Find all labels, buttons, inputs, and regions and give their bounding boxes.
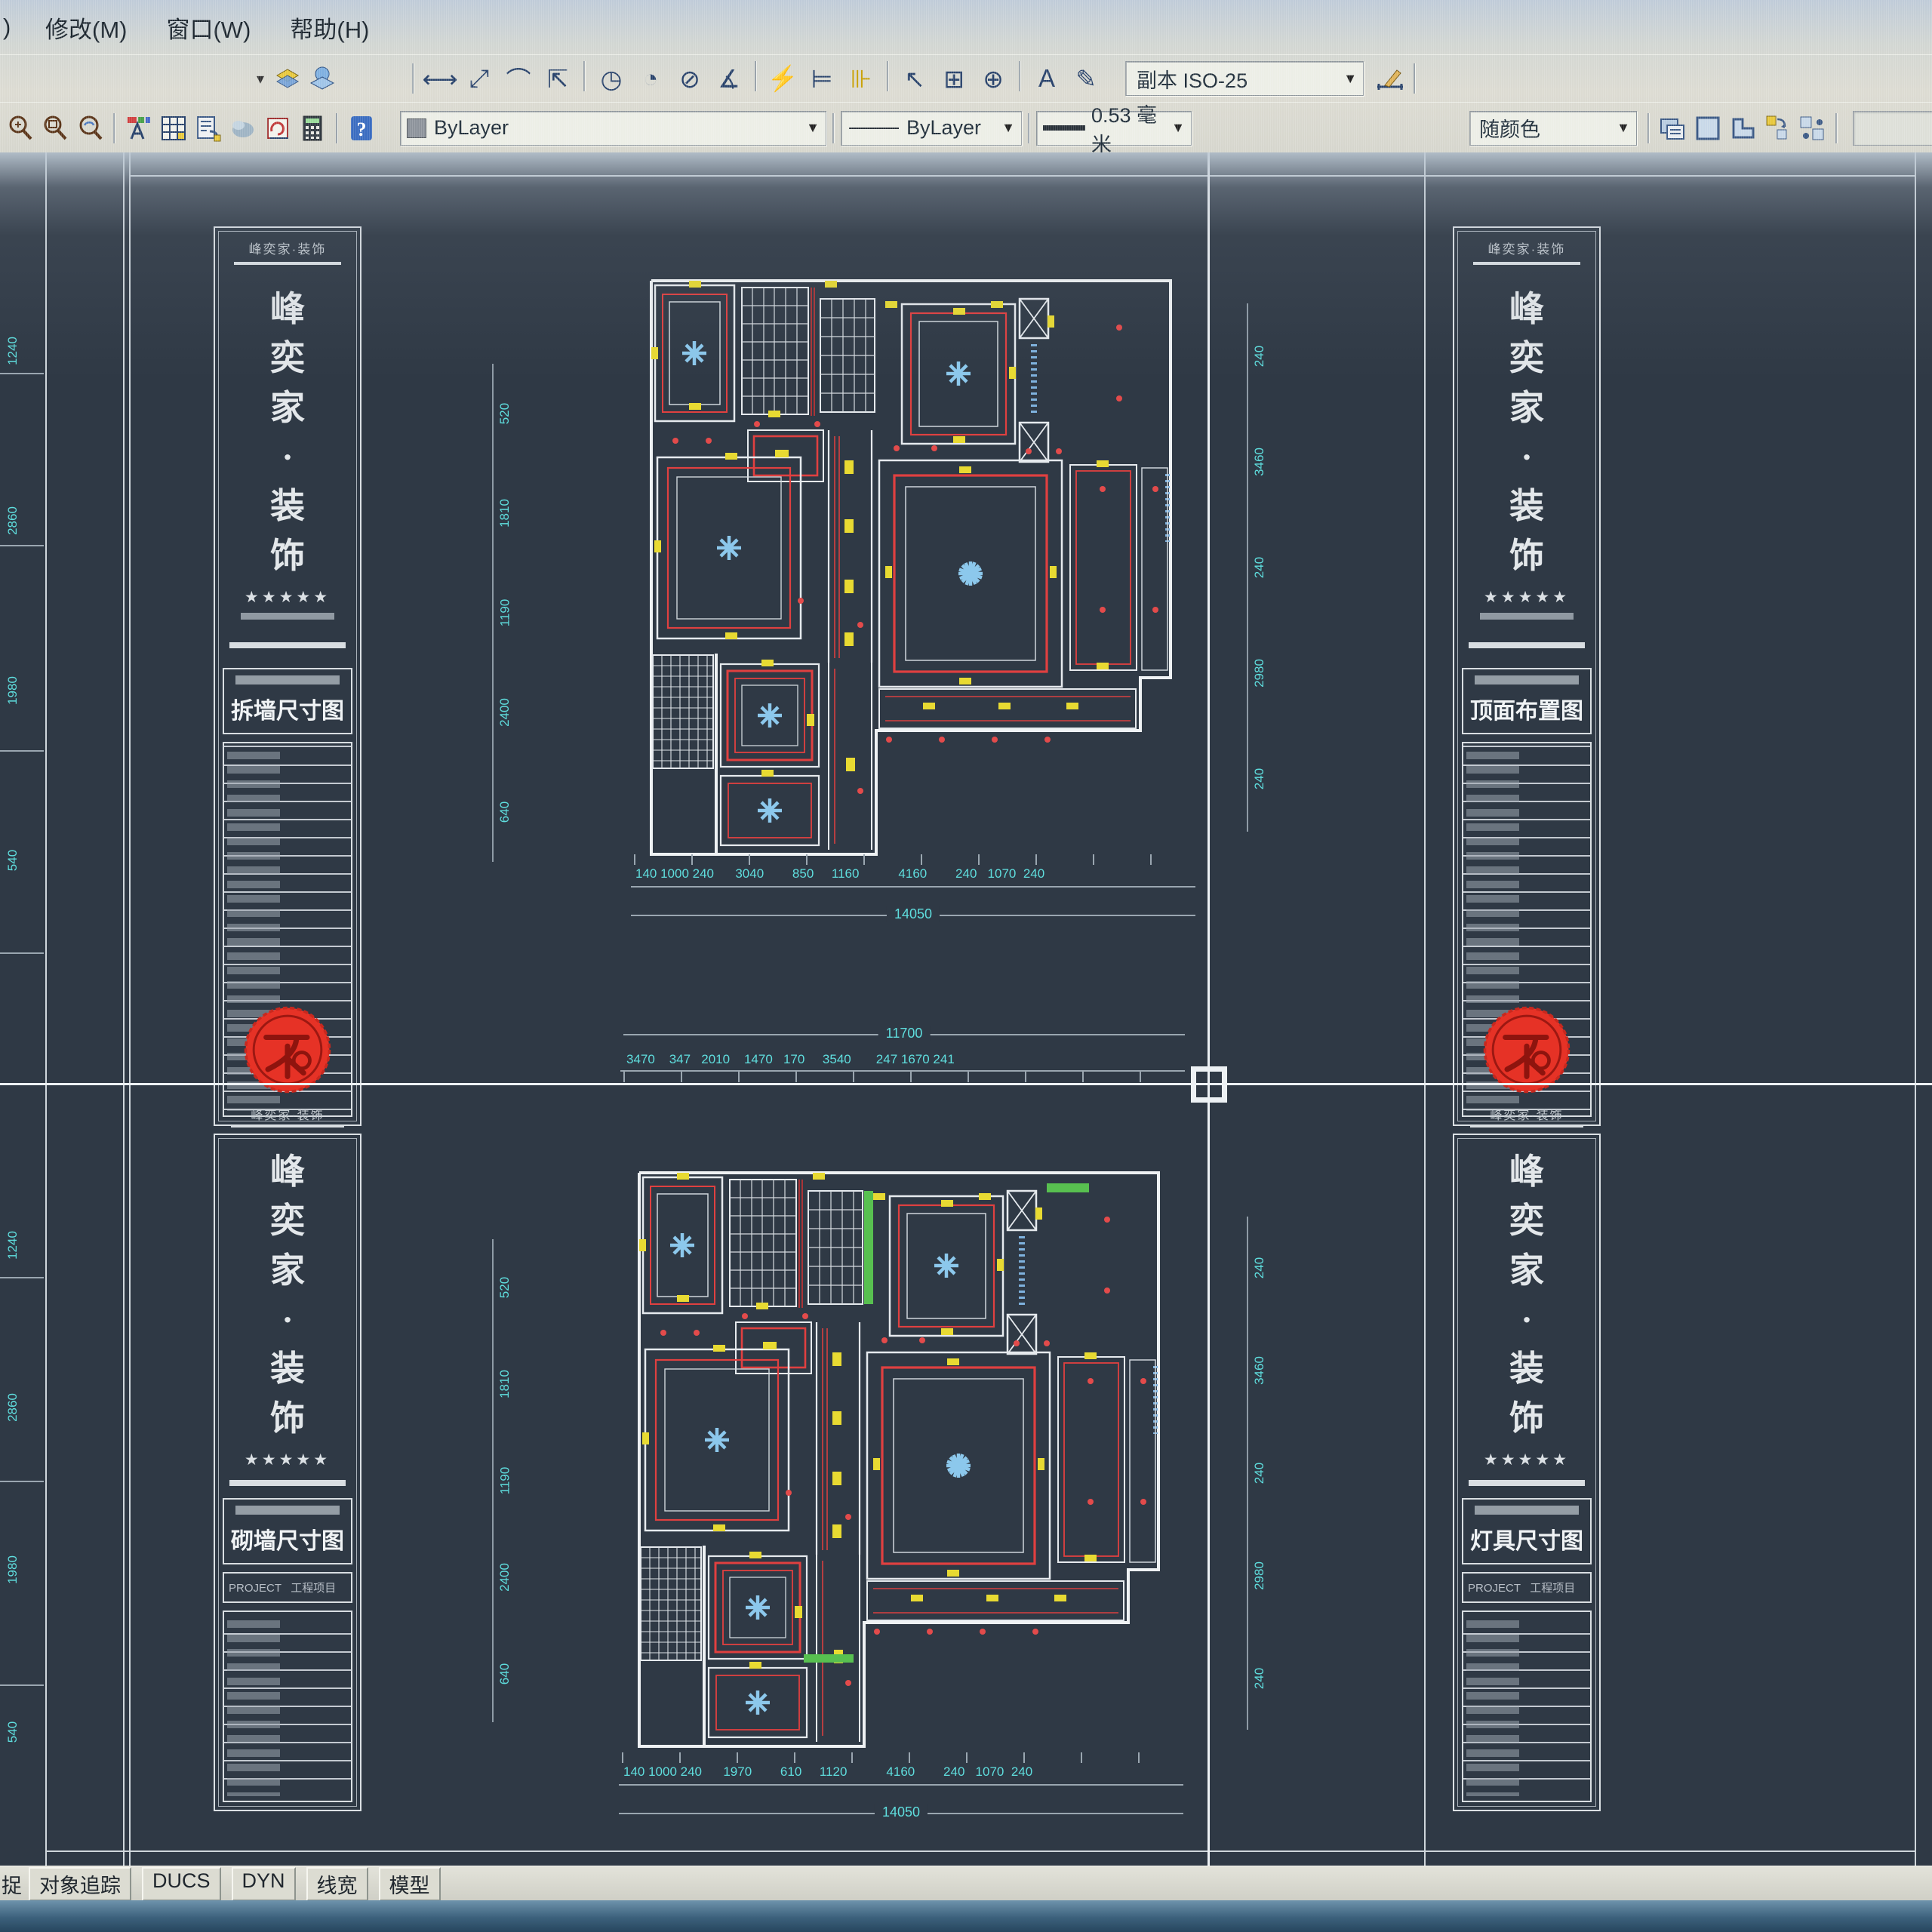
sheet-border-line [129,152,131,1866]
titleblock-top-right: 峰奕家·装饰 峰 奕 家 · 装 饰 ★★★★★ 顶面布置图 [1453,226,1601,1126]
linetype-value: ByLayer [906,116,981,140]
dim-chain-labels: 140 1000 240 3040 850 1160 4160 240 1070… [635,866,1194,881]
dim-extension-line [0,952,44,954]
layer-color-swatch [407,118,426,138]
quick-leader-icon[interactable]: ↖ [895,61,934,96]
titleblock-wide-bar [1469,642,1586,648]
arc-length-dimension-icon[interactable]: ⌒ [499,61,538,96]
dim-chain-vertical: 124028601980540 [2,1164,24,1813]
properties-toolbar: ? ByLayer ▼ ByLayer ▼ 0.53 毫米 ▼ 随颜色 ▼ [0,102,1932,154]
sheet-border-line [1915,152,1916,1866]
crosshair-vertical-line [1207,152,1210,1866]
dimension-toolbar: ▾ ⟷⤢⌒⇱◷◔⊘∡⚡⊨⊪↖⊞⊕A✎ 副本 ISO-25 ▼ [0,54,1932,103]
batch-plot-icon[interactable] [1795,111,1829,146]
toolbar-separator [583,61,586,91]
titleblock-stars: ★★★★★ [1484,588,1570,607]
dimension-edit-icon[interactable]: A [1027,61,1066,96]
sheet-border-line [45,152,47,1866]
menu-window[interactable]: 窗口(W) [146,6,270,49]
toolbar-separator [887,61,889,91]
toolbar-separator [832,113,835,143]
titleblock-underline [231,1124,344,1128]
toolbar-separator [1028,113,1030,143]
zoom-realtime-icon[interactable] [3,111,38,146]
titleblock-brand-header: 峰奕家·装饰 [1453,1105,1601,1123]
titleblock-brand-vertical: 峰 奕 家 · 装 饰 [270,285,305,580]
publish-icon[interactable] [1760,111,1795,146]
help-icon[interactable]: ? [344,111,379,146]
layer-combo[interactable]: ByLayer ▼ [400,111,826,146]
angular-dimension-icon[interactable]: ∡ [709,61,749,96]
status-model[interactable]: 模型 [379,1867,441,1901]
menu-items: 修改(M)窗口(W)帮助(H) [26,6,389,49]
dim-chain-labels: 3470 347 2010 1470 170 3540 247 1670 241 [626,1052,1185,1067]
titleblock-brand-header: 峰奕家·装饰 [249,238,327,257]
markup-icon[interactable] [260,111,295,146]
tolerance-icon[interactable]: ⊞ [934,61,974,96]
titleblock-wide-bar [1469,1480,1586,1486]
sheet-label: 灯具尺寸图 [1470,1522,1583,1555]
project-row: PROJECT 工程项目 [1462,1572,1592,1603]
dim-line [619,1784,1183,1786]
print-preview-icon[interactable] [1656,111,1690,146]
menu-bar: ) 修改(M)窗口(W)帮助(H) [0,0,1932,54]
linetype-sample [849,128,899,129]
menu-help[interactable]: 帮助(H) [270,6,389,49]
sheet-label: 顶面布置图 [1470,692,1583,725]
titleblock-brand-vertical: 峰 奕 家 · 装 饰 [270,1147,305,1443]
svg-text:?: ? [357,118,367,140]
dim-total: 11700 [623,1034,1185,1035]
crosshair-horizontal-line [0,1083,1932,1085]
toolbar-separator [1019,61,1021,91]
titleblock-stars: ★★★★★ [1484,1451,1570,1469]
status-dyn[interactable]: DYN [232,1867,296,1901]
monitor-bezel [0,1900,1932,1932]
titleblock-bottom-right: 峰 奕 家 · 装 饰 ★★★★★ 灯具尺寸图 PROJECT 工程项目 [1453,1134,1601,1811]
dim-chain-vertical: 24034602402980240 [1247,1217,1271,1730]
layer-states-icon[interactable] [305,61,340,96]
dim-chain-vertical: 520181011902400640 [492,1239,516,1722]
titleblock-stars: ★★★★★ [245,588,331,607]
chevron-down-icon[interactable]: ▼ [1343,71,1357,87]
layer-translate-icon[interactable] [191,111,226,146]
label-strip [1475,675,1579,685]
dim-chain-vertical: 124028601980540 [2,266,24,945]
sheet-label: 拆墙尺寸图 [231,692,344,725]
dim-ticks [623,1072,1182,1082]
titleblock-brand-vertical: 峰 奕 家 · 装 饰 [1509,1147,1544,1443]
dimension-toolbar-icons: ⟷⤢⌒⇱◷◔⊘∡⚡⊨⊪↖⊞⊕A✎ [420,61,1106,96]
quick-dimension-icon[interactable]: ⚡ [763,61,802,96]
sheet-label-box: 顶面布置图 [1462,668,1592,734]
center-mark-icon[interactable]: ⊕ [974,61,1013,96]
status-clipped-fragment: 捉 [2,1869,21,1899]
status-ducs[interactable]: DUCS [142,1867,221,1901]
linear-dimension-icon[interactable]: ⟷ [420,61,460,96]
label-strip [235,675,340,685]
titleblock-wide-bar [229,642,346,648]
layer-value: ByLayer [434,116,509,140]
project-row: PROJECT 工程项目 [223,1572,352,1603]
page-setup-icon[interactable] [1725,111,1760,146]
sheet-label-box: 拆墙尺寸图 [223,668,352,734]
titleblock-wide-bar [229,1480,346,1486]
sheet-label-box: 灯具尺寸图 [1462,1498,1592,1564]
titleblock-brand-vertical: 峰 奕 家 · 装 饰 [1509,285,1544,580]
titleblock-stars: ★★★★★ [245,1451,331,1469]
calculator-icon[interactable] [295,111,330,146]
toolbar-separator [1647,113,1650,143]
titleblock-gray-line [1480,613,1574,620]
sheet-border-line [45,1850,1915,1852]
render-icon[interactable] [226,111,260,146]
jogged-dimension-icon[interactable]: ◔ [631,61,670,96]
crosshair-pickbox [1191,1066,1227,1103]
lineweight-combo[interactable]: 0.53 毫米 ▼ [1036,111,1192,146]
toolbar-separator [1835,113,1838,143]
empty-docked-toolbar [1853,111,1932,146]
toolbar-separator [113,113,115,143]
label-strip [235,1506,340,1515]
company-stamp [243,1005,332,1094]
lineweight-sample [1043,125,1085,131]
chevron-down-icon[interactable]: ▼ [1617,120,1630,136]
status-object-tracking[interactable]: 对象追踪 [29,1867,131,1901]
sheet-border-line [1424,152,1426,1866]
floor-plan-top [625,263,1198,866]
sheet-label: 砌墙尺寸图 [231,1522,344,1555]
company-stamp [1482,1005,1571,1094]
dim-chain-vertical: 520181011902400640 [492,364,516,862]
dimension-update-icon[interactable] [1373,61,1407,96]
sheet-border-line [123,152,125,1866]
zoom-window-icon[interactable] [38,111,72,146]
titleblock-top-left: 峰奕家·装饰 峰 奕 家 · 装 饰 ★★★★★ 拆墙尺寸图 [214,226,361,1126]
application-chrome: ) 修改(M)窗口(W)帮助(H) ▾ ⟷⤢⌒⇱◷◔⊘∡⚡⊨⊪↖⊞⊕A✎ 副本 … [0,0,1932,152]
titleblock-bottom-left: 峰 奕 家 · 装 饰 ★★★★★ 砌墙尺寸图 PROJECT 工程项目 [214,1134,361,1811]
linetype-combo[interactable]: ByLayer ▼ [841,111,1022,146]
plotstyle-value: 随颜色 [1479,113,1540,143]
ordinate-dimension-icon[interactable]: ⇱ [538,61,577,96]
aligned-dimension-icon[interactable]: ⤢ [460,61,499,96]
lineweight-value: 0.53 毫米 [1091,99,1171,158]
titleblock-table [223,1611,352,1802]
dimension-style-value: 副本 ISO-25 [1137,64,1247,94]
titleblock-gray-line [241,613,334,620]
toolbar-separator [336,113,338,143]
dimension-text-edit-icon[interactable]: ✎ [1066,61,1106,96]
label-strip [1475,1506,1579,1515]
drawing-canvas[interactable]: 峰奕家·装饰 峰 奕 家 · 装 饰 ★★★★★ 拆墙尺寸图 峰奕家·装饰 峰 … [0,152,1932,1866]
continue-dimension-icon[interactable]: ⊪ [841,61,881,96]
dim-chain-labels: 140 1000 240 1970 610 1120 4160 240 1070… [623,1764,1182,1780]
status-toggle-buttons: 对象追踪DUCSDYN线宽模型 [29,1867,451,1901]
titleblock-underline [234,262,340,265]
baseline-dimension-icon[interactable]: ⊨ [802,61,841,96]
dim-ticks [622,1752,1180,1763]
plot-icon[interactable] [1690,111,1725,146]
toolbar-separator [755,61,757,91]
diameter-dimension-icon[interactable]: ⊘ [670,61,709,96]
chevron-down-icon[interactable]: ▼ [1171,120,1185,136]
titleblock-brand-header: 峰奕家·装饰 [214,1105,361,1123]
table-style-icon[interactable] [156,111,191,146]
floor-plan-bottom [613,1155,1186,1758]
status-bar: 捉 对象追踪DUCSDYN线宽模型 [0,1866,1932,1901]
zoom-previous-icon[interactable] [72,111,107,146]
dim-total: 14050 [619,1813,1183,1814]
chevron-down-icon[interactable]: ▼ [1001,120,1015,136]
status-lineweight[interactable]: 线宽 [306,1867,368,1901]
radius-dimension-icon[interactable]: ◷ [592,61,631,96]
titleblock-table [1462,1611,1592,1802]
dim-line [631,886,1195,888]
dimension-style-combo[interactable]: 副本 ISO-25 ▼ [1125,61,1364,96]
dim-ticks [634,854,1192,865]
toolbar-separator [1414,63,1416,94]
sheet-border-line [129,175,1915,177]
text-style-icon[interactable] [122,111,156,146]
menu-modify[interactable]: 修改(M) [26,6,146,49]
sheet-label-box: 砌墙尺寸图 [223,1498,352,1564]
titleblock-underline [1473,262,1580,265]
titleblock-brand-header: 峰奕家·装饰 [1488,238,1566,257]
menu-clipped-fragment: ) [3,14,26,41]
titleblock-underline [1470,1124,1583,1128]
chevron-down-icon[interactable]: ▼ [806,120,820,136]
dim-total: 14050 [631,915,1195,916]
layer-previous-icon[interactable] [270,61,305,96]
toolbar-separator [412,63,414,94]
toolbar-overflow-arrow[interactable]: ▾ [257,69,264,88]
plotstyle-combo[interactable]: 随颜色 ▼ [1469,111,1637,146]
dim-chain-vertical: 24034602402980240 [1247,303,1271,832]
